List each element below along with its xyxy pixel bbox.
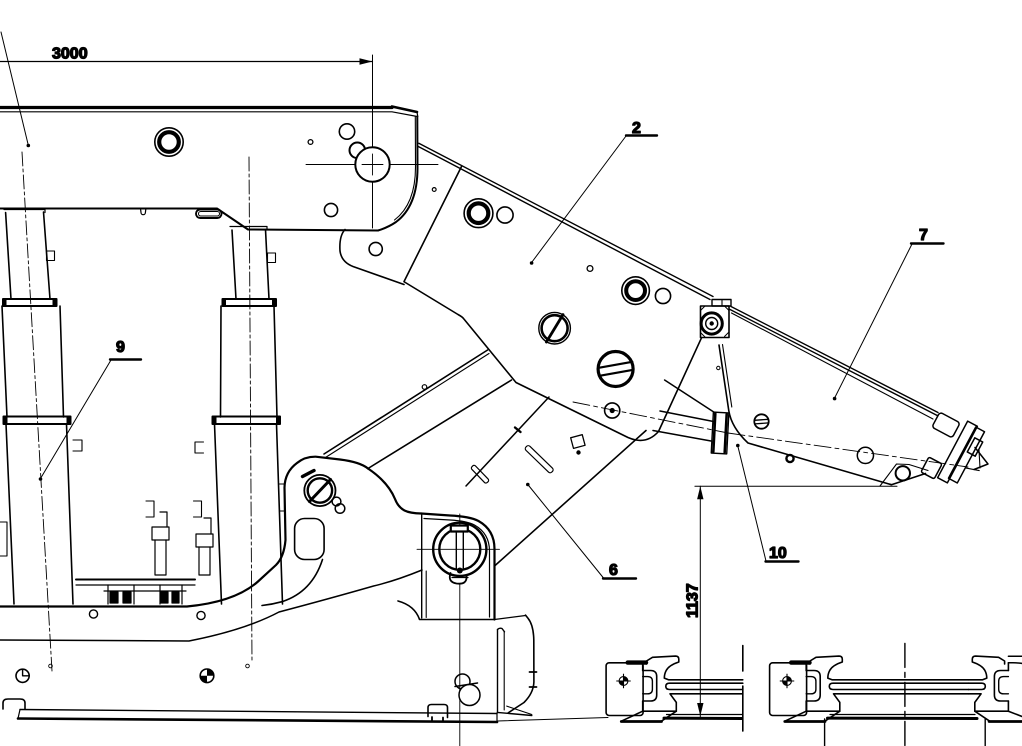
svg-text:1137: 1137 [685, 583, 702, 618]
svg-text:10: 10 [769, 545, 787, 562]
svg-text:6: 6 [609, 562, 618, 579]
svg-text:7: 7 [919, 227, 928, 244]
svg-text:9: 9 [116, 339, 125, 356]
svg-text:3000: 3000 [52, 46, 88, 63]
